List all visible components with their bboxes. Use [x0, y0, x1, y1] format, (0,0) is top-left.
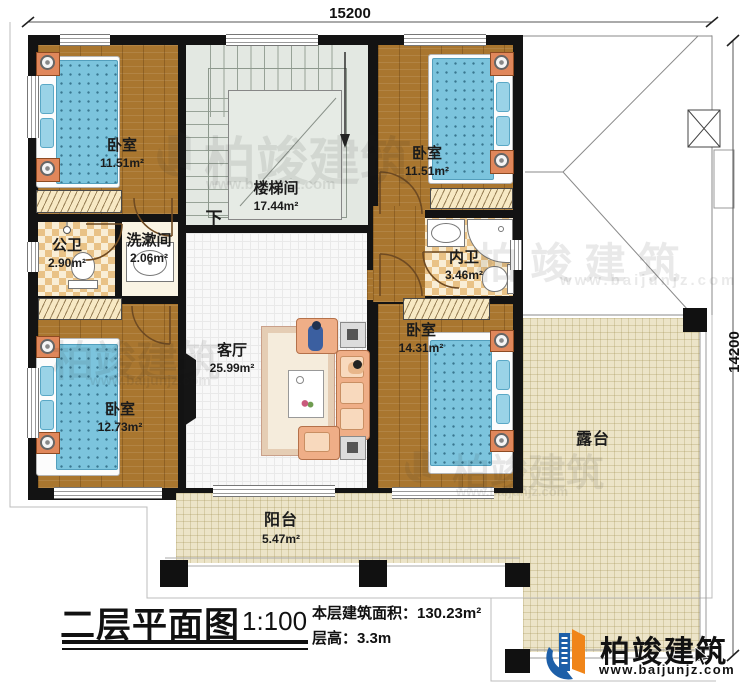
- room-name: 公卫: [38, 236, 96, 256]
- column: [160, 560, 188, 587]
- room-area: 11.51m²: [78, 156, 166, 172]
- column: [683, 308, 707, 332]
- room-name: 卧室: [382, 144, 472, 164]
- room-area: 11.51m²: [382, 164, 472, 180]
- room-name: 内卫: [432, 248, 496, 268]
- label-bedroom-bottom-left: 卧室 12.73m²: [76, 400, 164, 435]
- lamp-icon: [40, 339, 55, 354]
- pillow: [40, 118, 54, 148]
- lamp-icon: [494, 153, 509, 168]
- window: [226, 34, 318, 46]
- wardrobe-bottom-left: [38, 298, 122, 320]
- quilt-bottom-right: [430, 340, 492, 466]
- label-bedroom-bottom-right: 卧室 14.31m²: [377, 321, 465, 356]
- terrace-floor: [523, 318, 700, 652]
- room-name: 阳台: [246, 511, 316, 532]
- room-name: 客厅: [192, 341, 272, 361]
- label-bedroom-top-left: 卧室 11.51m²: [78, 136, 166, 171]
- armchair-cushion: [304, 432, 330, 452]
- room-name: 卧室: [377, 321, 465, 341]
- room-area: 3.46m²: [432, 268, 496, 284]
- label-public-bath: 公卫 2.90m²: [38, 236, 96, 271]
- wardrobe-top-left: [36, 190, 122, 213]
- room-area: 25.99m²: [192, 361, 272, 377]
- window: [404, 34, 486, 46]
- room-name: 楼梯间: [236, 179, 316, 199]
- sofa-cushion: [340, 382, 364, 404]
- brand-site-link[interactable]: www.baijunjz.com: [599, 662, 735, 677]
- lamp-icon: [40, 435, 55, 450]
- window: [27, 76, 39, 138]
- wardrobe-top-right: [430, 188, 513, 209]
- room-area: 12.73m²: [76, 420, 164, 436]
- stairs-down-text: 下: [206, 209, 223, 228]
- toilet-tank: [68, 280, 98, 289]
- column: [359, 560, 387, 587]
- pillow: [40, 400, 54, 430]
- dimension-value: 14200: [726, 331, 743, 373]
- column: [505, 649, 530, 673]
- room-area: 5.47m²: [246, 532, 316, 548]
- label-living: 客厅 25.99m²: [192, 341, 272, 376]
- floorplan-canvas: 卧室 11.51m² 楼梯间 17.44m² 下 卧室 11.51m² 公卫 2…: [0, 0, 750, 694]
- pillow: [496, 394, 510, 424]
- watermark-url: www.baijunjz.com: [560, 272, 737, 289]
- room-area: 2.90m²: [38, 256, 96, 272]
- floor-area-text: 本层建筑面积：130.23m²: [312, 605, 481, 622]
- dimension-right: 14200: [726, 323, 742, 381]
- pillow: [40, 366, 54, 396]
- side-table-lamp: [347, 442, 358, 453]
- wardrobe-bottom-right: [403, 298, 490, 320]
- lamp-icon: [40, 161, 55, 176]
- room-name: 卧室: [78, 136, 166, 156]
- room-name: 洗漱间: [118, 231, 180, 251]
- room-area: 17.44m²: [236, 199, 316, 215]
- title-underline: [62, 640, 308, 644]
- room-name: 卧室: [76, 400, 164, 420]
- lamp-icon: [40, 55, 55, 70]
- table-flowers: [300, 398, 314, 410]
- floor-area-note: 本层建筑面积：130.23m²: [312, 602, 481, 623]
- label-ensuite: 内卫 3.46m²: [432, 248, 496, 283]
- window: [27, 368, 39, 438]
- room-area: 2.06m²: [118, 251, 180, 267]
- label-balcony: 阳台 5.47m²: [246, 511, 316, 547]
- pillow: [40, 84, 54, 114]
- scale-text: 1:100: [242, 606, 307, 636]
- floor-height-note: 层高：3.3m: [312, 627, 391, 648]
- mouse-cursor-icon: [694, 647, 710, 667]
- window: [54, 487, 162, 499]
- person-head: [353, 360, 362, 369]
- shower-drain: [498, 226, 504, 232]
- pillow: [496, 82, 510, 112]
- brand-logo-icon[interactable]: [536, 624, 596, 680]
- brand-site-text: www.baijunjz.com: [599, 662, 735, 677]
- lamp-icon: [494, 333, 509, 348]
- drawing-scale: 1:100: [242, 606, 307, 637]
- label-washroom: 洗漱间 2.06m²: [118, 231, 180, 266]
- coffee-table: [288, 370, 324, 418]
- watermark-site: www.baijunjz.com: [560, 272, 737, 289]
- dimension-value: 15200: [329, 5, 371, 22]
- pillow: [496, 360, 510, 390]
- lamp-icon: [494, 433, 509, 448]
- room-area: 14.31m²: [377, 341, 465, 357]
- window: [60, 34, 110, 46]
- lamp-icon: [494, 55, 509, 70]
- room-name: 露台: [561, 430, 625, 451]
- vestibule-floor: [373, 206, 425, 302]
- window: [510, 240, 522, 270]
- label-stairwell: 楼梯间 17.44m²: [236, 179, 316, 214]
- table-item: [296, 376, 304, 384]
- title-underline-thin: [62, 648, 308, 650]
- person-head: [312, 321, 321, 330]
- balcony-floor: [176, 493, 523, 563]
- column: [505, 563, 530, 587]
- ensuite-sink: [431, 223, 461, 243]
- sofa-cushion: [340, 408, 364, 430]
- sliding-door-balcony: [213, 485, 335, 497]
- window: [392, 487, 494, 499]
- label-stairs-down: 下: [202, 208, 226, 230]
- side-table-lamp: [347, 329, 358, 340]
- vestibule-opening: [367, 270, 373, 300]
- dimension-top: 15200: [320, 5, 380, 22]
- roof-column-x: [688, 110, 720, 147]
- floor-height-text: 层高：3.3m: [312, 630, 391, 647]
- label-terrace: 露台: [561, 430, 625, 451]
- pillow: [496, 116, 510, 146]
- label-bedroom-top-right: 卧室 11.51m²: [382, 144, 472, 179]
